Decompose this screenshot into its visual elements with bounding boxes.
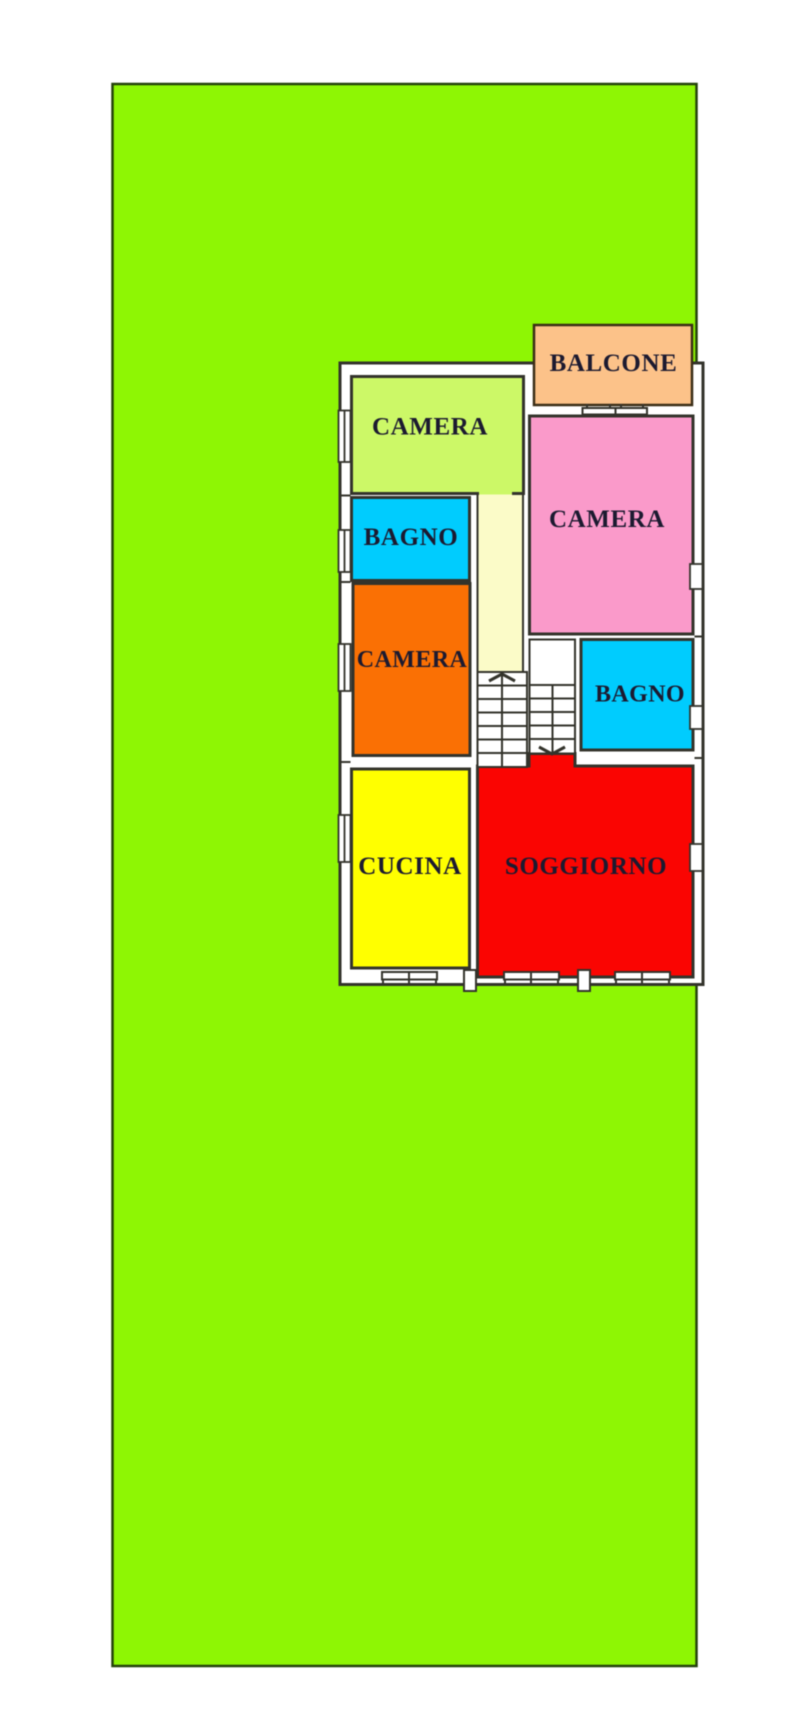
svg-text:BAGNO: BAGNO bbox=[364, 524, 459, 551]
svg-text:CAMERA: CAMERA bbox=[549, 506, 665, 533]
svg-text:CAMERA: CAMERA bbox=[357, 647, 468, 673]
svg-text:CUCINA: CUCINA bbox=[358, 853, 462, 880]
svg-text:CAMERA: CAMERA bbox=[372, 414, 488, 441]
svg-text:BALCONE: BALCONE bbox=[550, 350, 678, 377]
svg-text:SOGGIORNO: SOGGIORNO bbox=[505, 853, 667, 880]
svg-text:BAGNO: BAGNO bbox=[595, 682, 685, 708]
